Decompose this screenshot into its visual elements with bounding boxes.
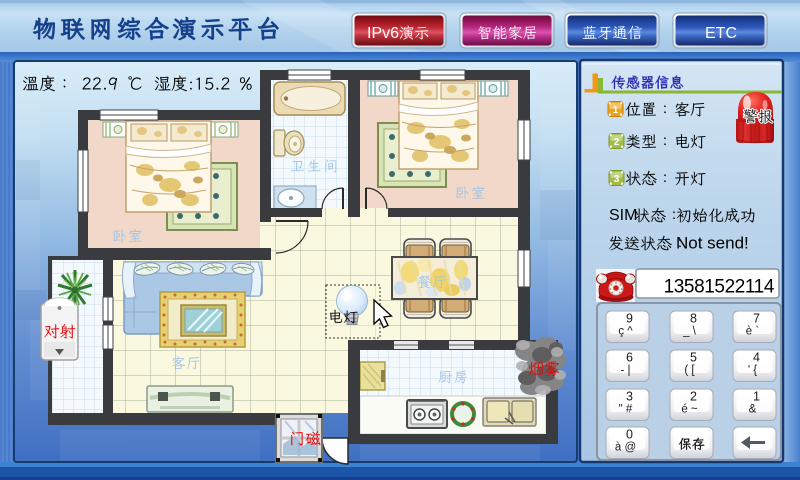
svg-text:1: 1 bbox=[753, 390, 760, 404]
svg-text:3: 3 bbox=[614, 174, 620, 185]
svg-text:8: 8 bbox=[690, 312, 697, 326]
svg-text:_ \: _ \ bbox=[682, 326, 697, 338]
svg-text:4: 4 bbox=[753, 351, 760, 365]
svg-text:- |: - | bbox=[620, 365, 630, 377]
svg-text:7: 7 bbox=[753, 312, 760, 326]
svg-text:3: 3 bbox=[626, 390, 633, 404]
svg-text:5: 5 bbox=[690, 351, 697, 365]
svg-text:ç ^: ç ^ bbox=[618, 326, 633, 338]
svg-text:é ~: é ~ bbox=[681, 404, 698, 416]
svg-text:6: 6 bbox=[626, 351, 633, 365]
svg-text:ETC: ETC bbox=[705, 25, 737, 42]
svg-text:IPv6: IPv6 bbox=[367, 25, 399, 42]
svg-text:2: 2 bbox=[690, 390, 697, 404]
svg-text:' {: ' { bbox=[748, 365, 757, 377]
svg-text:( [: ( [ bbox=[684, 365, 695, 377]
svg-text:&: & bbox=[749, 404, 757, 416]
svg-text:Not send!: Not send! bbox=[676, 234, 749, 253]
svg-text:2: 2 bbox=[614, 137, 620, 148]
svg-text:SIM: SIM bbox=[609, 207, 637, 224]
svg-text:13581522114: 13581522114 bbox=[664, 277, 775, 298]
svg-text:è `: è ` bbox=[746, 326, 759, 338]
svg-text:à @: à @ bbox=[615, 442, 636, 454]
svg-text:0: 0 bbox=[626, 428, 633, 442]
svg-text:" #: " # bbox=[619, 404, 633, 416]
svg-text:1: 1 bbox=[613, 105, 619, 116]
svg-text:9: 9 bbox=[626, 312, 633, 326]
